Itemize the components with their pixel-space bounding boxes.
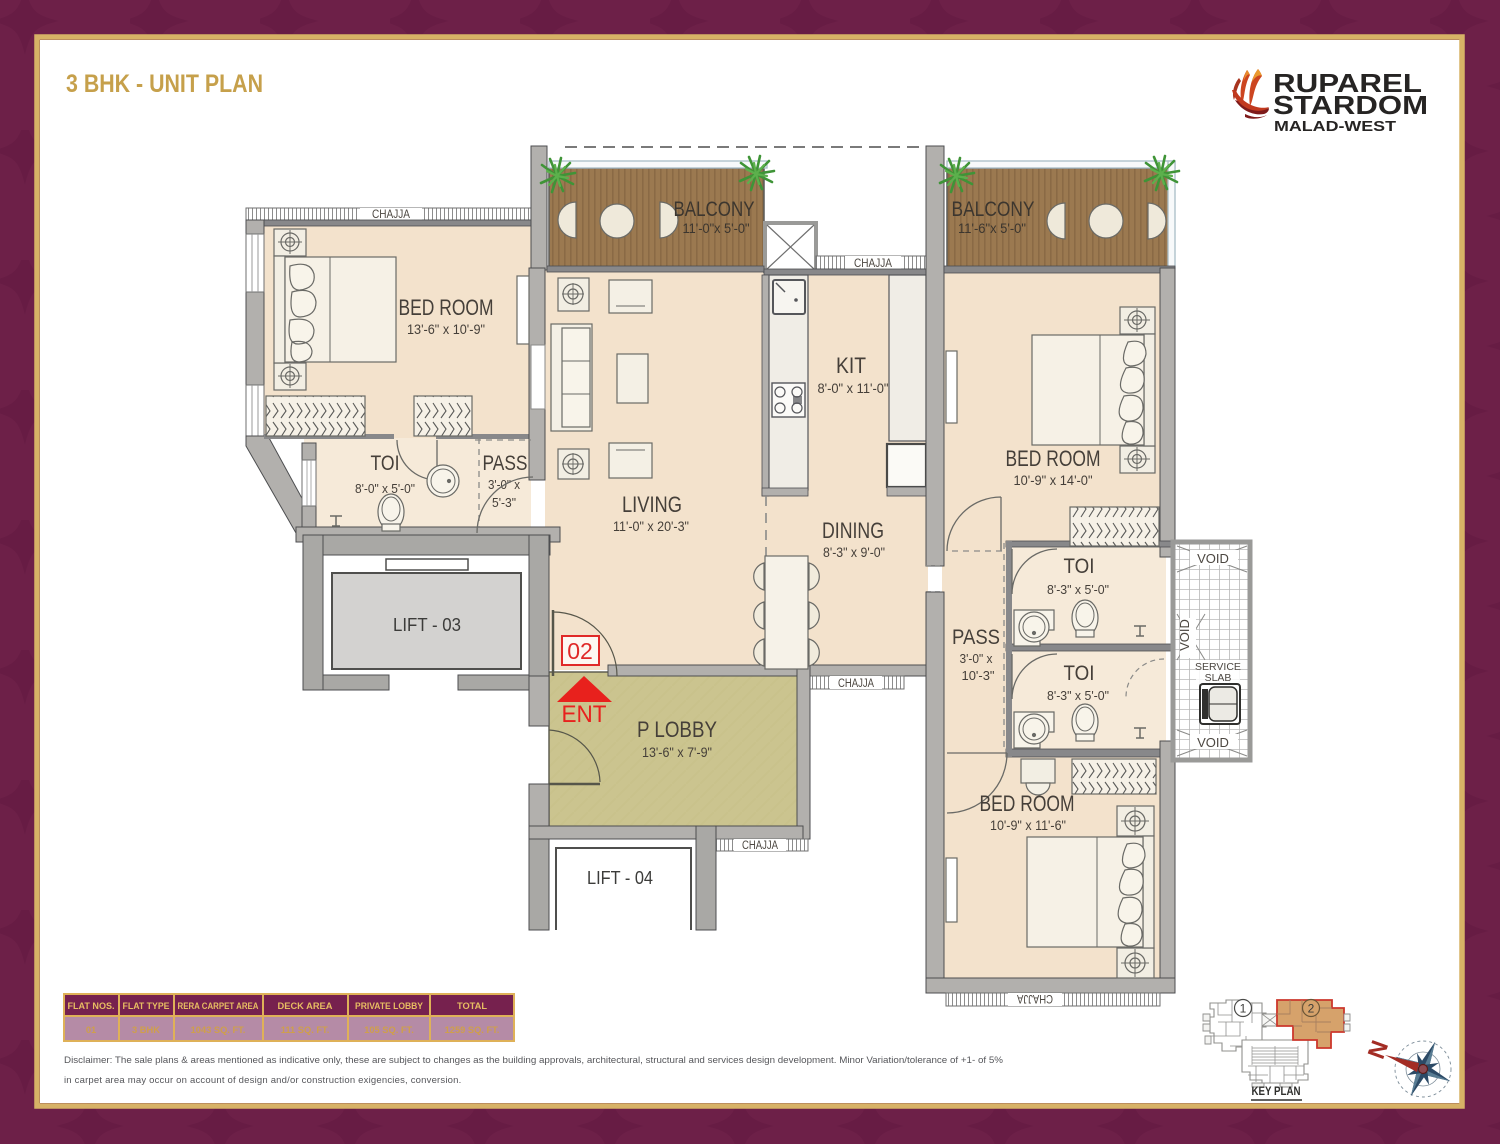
svg-text:DECK AREA: DECK AREA <box>278 1001 333 1011</box>
svg-text:SLAB: SLAB <box>1205 672 1232 684</box>
svg-text:BALCONY: BALCONY <box>674 198 755 221</box>
svg-text:in carpet area may occur on ac: in carpet area may occur on account of d… <box>64 1075 461 1086</box>
svg-text:PASS: PASS <box>952 626 1000 649</box>
svg-text:PASS: PASS <box>483 452 528 475</box>
svg-text:TOI: TOI <box>1064 555 1095 578</box>
svg-text:LIVING: LIVING <box>622 492 682 517</box>
svg-text:8'-3" x 9'-0": 8'-3" x 9'-0" <box>823 545 885 560</box>
svg-text:VOID: VOID <box>1177 619 1192 651</box>
svg-text:CHAJJA: CHAJJA <box>742 840 778 852</box>
svg-text:3 BHK: 3 BHK <box>132 1025 160 1035</box>
svg-text:11'-0"x 5'-0": 11'-0"x 5'-0" <box>683 221 750 236</box>
svg-text:2: 2 <box>1308 1002 1315 1016</box>
svg-text:11'-0" x 20'-3": 11'-0" x 20'-3" <box>613 519 689 534</box>
svg-text:02: 02 <box>567 638 593 664</box>
svg-text:8'-3" x 5'-0": 8'-3" x 5'-0" <box>1047 689 1109 703</box>
svg-text:BED ROOM: BED ROOM <box>1006 446 1101 471</box>
svg-text:105 SQ. FT.: 105 SQ. FT. <box>364 1025 414 1035</box>
svg-text:KIT: KIT <box>836 353 866 378</box>
svg-text:LIFT - 03: LIFT - 03 <box>393 615 461 635</box>
svg-text:13'-6" x 10'-9": 13'-6" x 10'-9" <box>407 322 485 337</box>
svg-text:01: 01 <box>86 1025 96 1035</box>
svg-text:BED ROOM: BED ROOM <box>980 791 1075 816</box>
svg-text:TOI: TOI <box>1064 662 1095 685</box>
svg-text:MALAD-WEST: MALAD-WEST <box>1274 118 1396 135</box>
svg-text:1043 SQ. FT.: 1043 SQ. FT. <box>191 1025 246 1035</box>
svg-text:5'-3": 5'-3" <box>492 496 516 510</box>
svg-text:10'-3": 10'-3" <box>962 669 995 683</box>
svg-text:8'-0" x 11'-0": 8'-0" x 11'-0" <box>818 381 889 396</box>
svg-text:Disclaimer: The sale plans & a: Disclaimer: The sale plans & areas menti… <box>64 1055 1004 1066</box>
svg-text:11'-6"x 5'-0": 11'-6"x 5'-0" <box>958 221 1026 236</box>
svg-text:DINING: DINING <box>822 518 884 543</box>
svg-text:CHAJJA: CHAJJA <box>372 207 410 221</box>
svg-text:TOTAL: TOTAL <box>457 1001 487 1011</box>
svg-text:13'-6" x 7'-9": 13'-6" x 7'-9" <box>642 745 712 760</box>
svg-text:10'-9" x 14'-0": 10'-9" x 14'-0" <box>1014 473 1093 488</box>
svg-text:8'-3" x 5'-0": 8'-3" x 5'-0" <box>1047 583 1109 597</box>
svg-text:ENT: ENT <box>562 701 607 728</box>
svg-text:STARDOM: STARDOM <box>1273 90 1428 120</box>
svg-text:8'-0" x 5'-0": 8'-0" x 5'-0" <box>355 482 415 496</box>
svg-text:VOID: VOID <box>1197 551 1229 566</box>
svg-text:BALCONY: BALCONY <box>952 198 1035 221</box>
svg-text:3'-0" x: 3'-0" x <box>960 652 994 666</box>
svg-text:RERA CARPET AREA: RERA CARPET AREA <box>178 1001 259 1011</box>
svg-text:10'-9" x 11'-6": 10'-9" x 11'-6" <box>990 818 1066 833</box>
svg-text:P LOBBY: P LOBBY <box>637 717 717 742</box>
svg-text:111 SQ. FT.: 111 SQ. FT. <box>281 1025 330 1035</box>
svg-text:KEY PLAN: KEY PLAN <box>1252 1086 1301 1098</box>
svg-text:LIFT - 04: LIFT - 04 <box>587 868 653 888</box>
svg-text:PRIVATE LOBBY: PRIVATE LOBBY <box>355 1001 424 1011</box>
svg-text:CHAJJA: CHAJJA <box>1017 992 1053 1004</box>
svg-text:3 BHK - UNIT PLAN: 3 BHK - UNIT PLAN <box>66 70 263 98</box>
svg-text:FLAT TYPE: FLAT TYPE <box>123 1001 170 1011</box>
svg-text:TOI: TOI <box>371 452 400 475</box>
svg-text:1: 1 <box>1240 1002 1247 1016</box>
svg-text:CHAJJA: CHAJJA <box>838 678 874 690</box>
svg-text:VOID: VOID <box>1197 735 1229 750</box>
svg-text:BED ROOM: BED ROOM <box>399 295 494 320</box>
svg-text:FLAT NOS.: FLAT NOS. <box>68 1001 115 1011</box>
svg-text:1259 SQ. FT.: 1259 SQ. FT. <box>445 1025 500 1035</box>
svg-text:CHAJJA: CHAJJA <box>854 256 892 270</box>
